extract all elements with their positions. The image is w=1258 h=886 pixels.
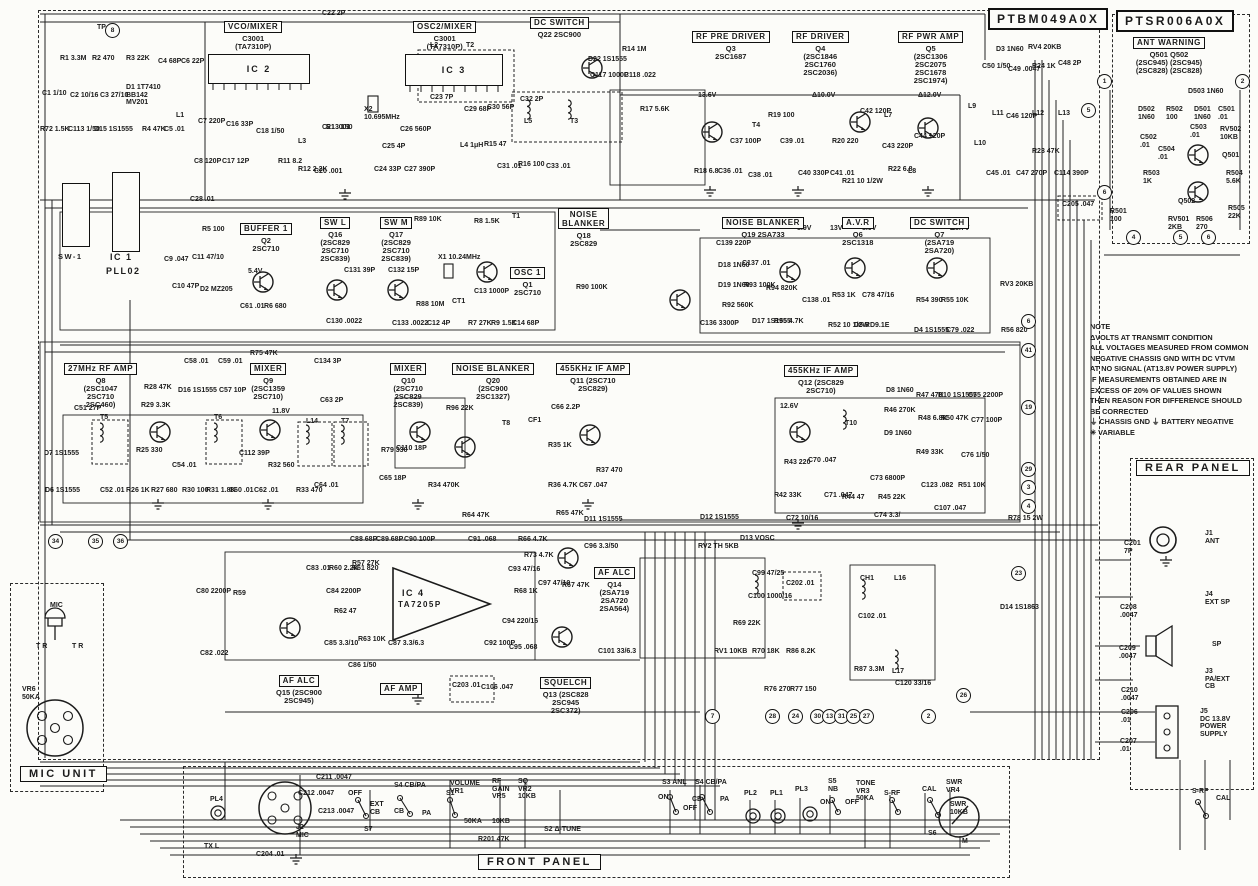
component-label: J1 ANT bbox=[1205, 530, 1219, 545]
component-label: R5 100 bbox=[202, 226, 225, 234]
component-label: C12 4P bbox=[427, 320, 450, 328]
component-label: C21 .001 bbox=[322, 124, 350, 132]
ic1-chip bbox=[112, 172, 140, 252]
component-label: R69 22K bbox=[733, 620, 761, 628]
component-label: L10 bbox=[974, 140, 986, 148]
block-parts: Q8 (2SC1047 2SC710 2SC460) bbox=[64, 377, 137, 409]
component-label: T5 bbox=[100, 414, 108, 422]
component-label: L9 bbox=[968, 103, 976, 111]
service-note: NOTE ΔVOLTS AT TRANSMIT CONDITION ALL VO… bbox=[1090, 322, 1258, 439]
component-label: C50 1/50 bbox=[982, 63, 1010, 71]
component-label: RV3 20KB bbox=[1000, 281, 1033, 289]
block-title: AF ALC bbox=[279, 675, 320, 687]
component-label: M bbox=[962, 838, 968, 846]
component-label: C80 2200P bbox=[196, 588, 231, 596]
component-label: C94 220/16 bbox=[502, 618, 538, 626]
component-label: S6 bbox=[928, 830, 937, 838]
component-label: R42 33K bbox=[774, 492, 802, 500]
component-label: C213 .0047 bbox=[318, 808, 354, 816]
component-label: C118 .022 bbox=[624, 72, 656, 80]
block-parts: Q17 (2SC829 2SC710 2SC839) bbox=[380, 231, 412, 263]
component-label: D16 1S1555 bbox=[178, 387, 217, 395]
component-label: PL4 bbox=[210, 796, 223, 804]
block-parts: Q20 (2SC900 2SC1327) bbox=[452, 377, 534, 401]
component-label: S-RF bbox=[884, 790, 900, 798]
component-label: C208 .0047 bbox=[1120, 604, 1138, 619]
block-parts: Q4 (2SC1846 2SC1760 2SC2036) bbox=[792, 45, 849, 77]
component-label: C17 12P bbox=[222, 158, 249, 166]
main-board-label: PTBM049A0X bbox=[988, 8, 1108, 30]
component-label: R63 10K bbox=[358, 636, 386, 644]
component-label: C20 .001 bbox=[314, 168, 342, 176]
block-title: OSC2/MIXER bbox=[413, 21, 476, 33]
block-parts: Q16 (2SC829 2SC710 2SC839) bbox=[320, 231, 350, 263]
component-label: R34 470K bbox=[428, 482, 460, 490]
terminal: 27 bbox=[859, 709, 874, 724]
terminal: 5 bbox=[1173, 230, 1188, 245]
component-label: T1 bbox=[512, 213, 520, 221]
component-label: R506 270 bbox=[1196, 216, 1213, 231]
component-label: R62 47 bbox=[334, 608, 357, 616]
component-label: Q501 bbox=[1222, 152, 1239, 160]
component-label: R29 3.3K bbox=[141, 402, 171, 410]
component-label: R46 270K bbox=[884, 407, 916, 415]
component-label: D8 1N60 bbox=[886, 387, 914, 395]
block-parts: Q12 (2SC829 2SC710) bbox=[784, 379, 858, 395]
block-parts: Q1 2SC710 bbox=[510, 281, 545, 297]
component-label: L5 bbox=[524, 118, 532, 126]
component-label: C6 22P bbox=[181, 58, 204, 66]
component-label: Δ10.0V bbox=[812, 92, 835, 100]
component-label: Δ12.0V bbox=[918, 92, 941, 100]
component-label: R1 3.3M bbox=[60, 55, 86, 63]
component-label: C503 .01 bbox=[1190, 124, 1207, 139]
component-label: R30 100 bbox=[182, 487, 208, 495]
component-label: L7 bbox=[884, 112, 892, 120]
component-label: RV2 TH 5KB bbox=[698, 543, 739, 551]
terminal: 34 bbox=[48, 534, 63, 549]
component-label: T10 bbox=[845, 420, 857, 428]
component-label: C139 220P bbox=[716, 240, 751, 248]
component-label: R73 4.7K bbox=[524, 552, 554, 560]
component-label: D5 RD9.1E bbox=[854, 322, 889, 330]
component-label: SQ VR2 10KB bbox=[518, 778, 536, 801]
block-title: 455KHz IF AMP bbox=[556, 363, 630, 375]
ic3-chip: IC 3 bbox=[405, 54, 503, 86]
component-label: C13 1000P bbox=[474, 288, 509, 296]
component-label: C3 27/10 bbox=[100, 92, 128, 100]
component-label: EXT CB bbox=[370, 801, 384, 816]
component-label: C84 2200P bbox=[326, 588, 361, 596]
component-label: C106 .047 bbox=[481, 684, 513, 692]
component-label: S4 CB/PA bbox=[695, 779, 727, 787]
component-label: D22 1S1555 bbox=[588, 56, 627, 64]
component-label: SWR 10KB bbox=[950, 801, 968, 816]
block-osc-1: OSC 1Q1 2SC710 bbox=[510, 262, 545, 297]
component-label: ON bbox=[658, 794, 669, 802]
component-label: C210 .0047 bbox=[1121, 687, 1139, 702]
component-label: C44 120P bbox=[914, 133, 945, 141]
component-label: OFF bbox=[683, 805, 697, 813]
component-label: RF GAIN VR5 bbox=[492, 778, 510, 801]
component-label: C82 .022 bbox=[200, 650, 228, 658]
component-label: C23 7P bbox=[430, 94, 453, 102]
component-label: C203 .01 bbox=[452, 682, 480, 690]
component-label: D12 1S1555 bbox=[700, 514, 739, 522]
component-label: C100 1000/16 bbox=[748, 593, 792, 601]
block-parts: C3001 (TA7310P) bbox=[413, 35, 476, 51]
block-vco-mixer: VCO/MIXERC3001 (TA7310P) bbox=[224, 16, 282, 51]
component-label: C16 33P bbox=[226, 121, 253, 129]
component-label: S2 Δ-TUNE bbox=[544, 826, 581, 834]
component-label: R6 680 bbox=[264, 303, 287, 311]
component-label: C62 .01 bbox=[254, 487, 279, 495]
component-label: R59 bbox=[233, 590, 246, 598]
terminal: 41 bbox=[1021, 343, 1036, 358]
component-label: C38 .01 bbox=[748, 172, 773, 180]
component-label: C91 .068 bbox=[468, 536, 496, 544]
component-label: C7 220P bbox=[198, 118, 225, 126]
component-label: RV1 10KB bbox=[714, 648, 747, 656]
component-label: C86 1/50 bbox=[348, 662, 376, 670]
terminal: 6 bbox=[1021, 314, 1036, 329]
block-af-amp: AF AMP bbox=[380, 678, 422, 697]
component-label: CH1 bbox=[860, 575, 874, 583]
block-sw-l: SW LQ16 (2SC829 2SC710 2SC839) bbox=[320, 212, 350, 263]
sw1-chip bbox=[62, 183, 90, 247]
component-label: R53 1K bbox=[832, 292, 856, 300]
component-label: C209 .0047 bbox=[1119, 645, 1137, 660]
component-label: C52 .01 bbox=[100, 487, 125, 495]
schematic-sheet: PTBM049A0X PTSR006A0X FRONT PANEL REAR P… bbox=[0, 0, 1258, 886]
terminal: 1 bbox=[1097, 74, 1112, 89]
component-label: C22 2P bbox=[322, 10, 345, 18]
component-label: C11 47/10 bbox=[192, 254, 224, 262]
component-label: C18 1/50 bbox=[256, 128, 284, 136]
component-label: ON bbox=[820, 799, 831, 807]
component-label: C37 100P bbox=[730, 138, 761, 146]
block-parts: Q15 (2SC900 2SC945) bbox=[276, 689, 322, 705]
component-label: C10 47P bbox=[172, 283, 199, 291]
component-label: CT1 bbox=[452, 298, 465, 306]
component-label: C36 .01 bbox=[718, 168, 743, 176]
terminal: 23 bbox=[1011, 566, 1026, 581]
component-label: R21 10 1/2W bbox=[842, 178, 883, 186]
block-title: 455KHz IF AMP bbox=[784, 365, 858, 377]
component-label: C67 .047 bbox=[579, 482, 607, 490]
component-label: C75 2200P bbox=[968, 392, 1003, 400]
component-label: C90 100P bbox=[404, 536, 435, 544]
terminal: 7 bbox=[705, 709, 720, 724]
terminal: 3 bbox=[1021, 480, 1036, 495]
component-label: C204 .01 bbox=[256, 851, 284, 859]
component-label: C504 .01 bbox=[1158, 146, 1175, 161]
block-title: SW M bbox=[380, 217, 412, 229]
component-label: T3 bbox=[570, 118, 578, 126]
component-label: R11 8.2 bbox=[278, 158, 302, 166]
component-label: L14 bbox=[306, 418, 318, 426]
component-label: R14 1M bbox=[622, 46, 647, 54]
component-label: CF1 bbox=[528, 417, 541, 425]
terminal: 6 bbox=[1097, 185, 1112, 200]
block-parts: Q501 Q502 (2SC945) (2SC945) (2SC828) (2S… bbox=[1133, 51, 1205, 75]
component-label: X2 10.695MHz bbox=[364, 106, 400, 121]
component-label: R20 220 bbox=[832, 138, 858, 146]
component-label: R36 4.7K bbox=[548, 482, 578, 490]
block-title: VCO/MIXER bbox=[224, 21, 282, 33]
component-label: D15 1S1555 bbox=[94, 126, 133, 134]
component-label: C25 4P bbox=[382, 143, 405, 151]
terminal: 28 bbox=[765, 709, 780, 724]
component-label: R75 47K bbox=[250, 350, 278, 358]
component-label: MIC bbox=[50, 602, 63, 610]
block-parts: Q9 (2SC1359 2SC710) bbox=[250, 377, 286, 401]
block-osc2-mixer: OSC2/MIXERC3001 (TA7310P) bbox=[413, 16, 476, 51]
component-label: R64 47K bbox=[462, 512, 490, 520]
component-label: C206 .01 bbox=[1121, 709, 1138, 724]
component-label: R66 4.7K bbox=[518, 536, 548, 544]
component-label: R56 820 bbox=[1001, 327, 1027, 335]
component-label: R504 5.6K bbox=[1226, 170, 1243, 185]
component-label: C79 .022 bbox=[946, 327, 974, 335]
block-title: NOISE BLANKER bbox=[722, 217, 804, 229]
component-label: T8 bbox=[502, 420, 510, 428]
component-label: C87 3.3/6.3 bbox=[388, 640, 424, 648]
component-label: C14 68P bbox=[512, 320, 539, 328]
component-label: C54 .01 bbox=[172, 462, 197, 470]
component-label: C72 10/16 bbox=[786, 515, 818, 523]
block-title: SW L bbox=[320, 217, 350, 229]
component-label: L1 bbox=[176, 112, 184, 120]
component-label: 13V bbox=[830, 225, 842, 233]
component-label: C28 .01 bbox=[190, 196, 215, 204]
block-af-alc: AF ALCQ15 (2SC900 2SC945) bbox=[276, 670, 322, 705]
block-title: DC SWITCH bbox=[910, 217, 969, 229]
component-label: C101 33/6.3 bbox=[598, 648, 636, 656]
component-label: RV501 2KB bbox=[1168, 216, 1189, 231]
component-label: R68 1K bbox=[514, 588, 538, 596]
component-label: R96 22K bbox=[446, 405, 474, 413]
component-label: S7 bbox=[364, 826, 373, 834]
component-label: PA bbox=[422, 810, 431, 818]
block-dc-switch: DC SWITCHQ7 (2SA719 2SA720) bbox=[910, 212, 969, 255]
component-label: C95 .068 bbox=[509, 644, 537, 652]
block-parts: Q5 (2SC1306 2SC2075 2SC1678 2SC1974) bbox=[898, 45, 963, 85]
component-label: C502 .01 bbox=[1140, 134, 1157, 149]
component-label: R54 390 bbox=[916, 297, 942, 305]
block-parts: Q22 2SC900 bbox=[530, 31, 589, 39]
block-dc-switch: DC SWITCHQ22 2SC900 bbox=[530, 12, 589, 39]
block-parts: Q19 2SA733 bbox=[722, 231, 804, 239]
component-label: PL3 bbox=[795, 786, 808, 794]
component-label: R70 18K bbox=[752, 648, 780, 656]
component-label: CAL bbox=[922, 786, 936, 794]
component-label: SP bbox=[1212, 641, 1221, 649]
component-label: C58 .01 bbox=[184, 358, 209, 366]
component-label: S-RF bbox=[1192, 788, 1208, 796]
component-label: L16 bbox=[894, 575, 906, 583]
component-label: R505 22K bbox=[1228, 205, 1245, 220]
component-label: C110 18P bbox=[396, 445, 427, 453]
component-label: T R bbox=[36, 643, 47, 651]
block-noise-blanker: NOISE BLANKERQ19 2SA733 bbox=[722, 212, 804, 239]
component-label: R92 560K bbox=[722, 302, 754, 310]
component-label: PL1 bbox=[770, 790, 783, 798]
component-label: C9 .047 bbox=[164, 256, 189, 264]
component-label: R55 10K bbox=[941, 297, 969, 305]
component-label: L4 1μH bbox=[460, 142, 483, 150]
component-label: R86 8.2K bbox=[786, 648, 816, 656]
component-label: C112 39P bbox=[239, 450, 270, 458]
component-label: D9 1N60 bbox=[884, 430, 912, 438]
component-label: S5 NB bbox=[828, 778, 838, 793]
ic4-part-label: TA7205P bbox=[398, 600, 442, 609]
component-label: C65 18P bbox=[379, 475, 406, 483]
component-label: C33 .01 bbox=[546, 163, 571, 171]
component-label: R78 15 2W bbox=[1008, 515, 1043, 523]
component-label: R51 10K bbox=[958, 482, 986, 490]
component-label: J3 PA/EXT CB bbox=[1205, 668, 1230, 691]
component-label: R18 6.8 bbox=[694, 168, 719, 176]
component-label: J2 MIC bbox=[296, 824, 309, 839]
block-parts: Q13 (2SC828 2SC945 2SC372) bbox=[540, 691, 591, 715]
component-label: R37 470 bbox=[596, 467, 622, 475]
component-label: D1 1T7410 BB142 MV201 bbox=[126, 84, 161, 107]
component-label: TX L bbox=[204, 843, 219, 851]
component-label: C212 .0047 bbox=[298, 790, 334, 798]
block-title: SQUELCH bbox=[540, 677, 591, 689]
terminal: 4 bbox=[1126, 230, 1141, 245]
block-noise-blanker: NOISE BLANKERQ20 (2SC900 2SC1327) bbox=[452, 358, 534, 401]
front-panel-label: FRONT PANEL bbox=[478, 854, 601, 870]
block-title: OSC 1 bbox=[510, 267, 545, 279]
component-label: C63 2P bbox=[320, 397, 343, 405]
component-label: L17 bbox=[892, 668, 904, 676]
component-label: R201 47K bbox=[478, 836, 510, 844]
block-455khz-if-amp: 455KHz IF AMPQ12 (2SC829 2SC710) bbox=[784, 360, 858, 395]
component-label: L11 bbox=[992, 110, 1004, 118]
component-label: R27 680 bbox=[151, 487, 177, 495]
component-label: RV502 10KB bbox=[1220, 126, 1241, 141]
component-label: C76 1/50 bbox=[961, 452, 989, 460]
component-label: C77 100P bbox=[971, 417, 1002, 425]
component-label: C96 3.3/50 bbox=[584, 543, 618, 551]
component-label: R25 330 bbox=[136, 447, 162, 455]
component-label: D3 1N60 bbox=[996, 46, 1024, 54]
terminal: 29 bbox=[1021, 462, 1036, 477]
block-rf-pre-driver: RF PRE DRIVERQ3 2SC1687 bbox=[692, 26, 770, 61]
component-label: R19 100 bbox=[768, 112, 794, 120]
component-label: C130 .0022 bbox=[326, 318, 362, 326]
component-label: PL2 bbox=[744, 790, 757, 798]
component-label: C137 .01 bbox=[742, 260, 770, 268]
component-label: L12 bbox=[1032, 110, 1044, 118]
component-label: C133 .0022 bbox=[392, 320, 428, 328]
block-title: 27MHz RF AMP bbox=[64, 363, 137, 375]
component-label: R95 4.7K bbox=[774, 318, 804, 326]
component-label: C138 .01 bbox=[802, 297, 830, 305]
block-af-alc: AF ALCQ14 (2SA719 2SA720 2SA564) bbox=[594, 562, 635, 613]
component-label: R43 220 bbox=[784, 459, 810, 467]
component-label: C59 .01 bbox=[218, 358, 243, 366]
component-label: D6 1S1555 bbox=[45, 487, 80, 495]
component-label: C123 .082 bbox=[921, 482, 953, 490]
block-parts: Q3 2SC1687 bbox=[692, 45, 770, 61]
component-label: D14 1S1863 bbox=[1000, 604, 1039, 612]
block-mixer: MIXERQ10 (2SC710 2SC829 2SC839) bbox=[390, 358, 426, 409]
component-label: RV4 20KB bbox=[1028, 44, 1061, 52]
component-label: R502 100 bbox=[1166, 106, 1183, 121]
block-title: NOISE BLANKER bbox=[452, 363, 534, 375]
component-label: PA bbox=[720, 796, 729, 804]
component-label: Q502 bbox=[1178, 198, 1195, 206]
component-label: C205 .047 bbox=[1062, 201, 1094, 209]
component-label: VR6 50KA bbox=[22, 686, 40, 701]
component-label: C2 10/16 bbox=[70, 92, 98, 100]
component-label: R87 3.3M bbox=[854, 666, 884, 674]
component-label: TONE VR3 50KA bbox=[856, 780, 875, 803]
block-parts: Q11 (2SC710 2SC829) bbox=[556, 377, 630, 393]
terminal: 4 bbox=[1021, 499, 1036, 514]
component-label: R17 5.6K bbox=[640, 106, 670, 114]
component-label: D4 1S1555 bbox=[914, 327, 949, 335]
block-27mhz-rf-amp: 27MHz RF AMPQ8 (2SC1047 2SC710 2SC460) bbox=[64, 358, 137, 409]
component-label: D503 1N60 bbox=[1188, 88, 1223, 96]
component-label: T4 bbox=[752, 122, 760, 130]
component-label: C60 .01 bbox=[229, 487, 254, 495]
terminal: 2 bbox=[921, 709, 936, 724]
component-label: L3 bbox=[298, 138, 306, 146]
component-label: 12.6V bbox=[780, 403, 798, 411]
component-label: C99 47/25 bbox=[752, 570, 784, 578]
component-label: R7 27K bbox=[468, 320, 492, 328]
component-label: C93 47/16 bbox=[508, 566, 540, 574]
component-label: C40 330P bbox=[798, 170, 829, 178]
component-label: L13 bbox=[1058, 110, 1070, 118]
terminal: 24 bbox=[788, 709, 803, 724]
component-label: R90 100K bbox=[576, 284, 608, 292]
block-noise-blanker: NOISE BLANKERQ18 2SC829 bbox=[558, 208, 609, 248]
component-label: R15 47 bbox=[484, 141, 507, 149]
component-label: C83 .01 bbox=[306, 565, 331, 573]
component-label: R35 1K bbox=[548, 442, 572, 450]
block-parts: Q14 (2SA719 2SA720 2SA564) bbox=[594, 581, 635, 613]
block-title: RF PWR AMP bbox=[898, 31, 963, 43]
component-label: 13.6V bbox=[698, 92, 716, 100]
block-parts: Q18 2SC829 bbox=[558, 232, 609, 248]
block-title: BUFFER 1 bbox=[240, 223, 292, 235]
component-label: R28 47K bbox=[144, 384, 172, 392]
component-label: C136 3300P bbox=[700, 320, 739, 328]
component-label: R26 1K bbox=[126, 487, 150, 495]
component-label: OFF bbox=[348, 790, 362, 798]
component-label: R503 1K bbox=[1143, 170, 1160, 185]
component-label: C74 3.3/ bbox=[874, 512, 900, 520]
component-label: CAL bbox=[1216, 795, 1230, 803]
component-label: C48 2P bbox=[1058, 60, 1081, 68]
component-label: C47 270P bbox=[1016, 170, 1047, 178]
component-label: C32 2P bbox=[520, 96, 543, 104]
component-label: C78 47/16 bbox=[862, 292, 894, 300]
component-label: D502 1N60 bbox=[1138, 106, 1155, 121]
component-label: C4 68P bbox=[158, 58, 181, 66]
block-rf-driver: RF DRIVERQ4 (2SC1846 2SC1760 2SC2036) bbox=[792, 26, 849, 77]
block-title: RF PRE DRIVER bbox=[692, 31, 770, 43]
component-label: C134 3P bbox=[314, 358, 341, 366]
terminal: 6 bbox=[1201, 230, 1216, 245]
block-title: AF AMP bbox=[380, 683, 422, 695]
component-label: C201 7P bbox=[1124, 540, 1141, 555]
